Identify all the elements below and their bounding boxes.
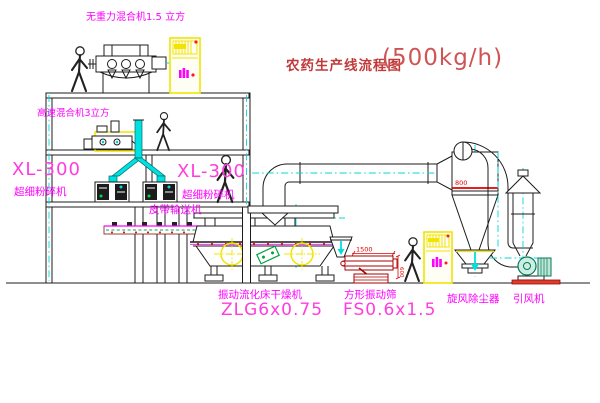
label-dryer-model: ZLG6x0.75: [221, 302, 323, 319]
pulverizer-left: [95, 176, 129, 202]
belt-conveyor: [104, 222, 202, 234]
label-mill-center-model: XL-300: [177, 163, 246, 181]
indicator-dot: [194, 40, 197, 43]
gravity-mixer: [88, 45, 174, 93]
control-cabinet-lower: [424, 232, 452, 283]
exhaust-hood-duct: [248, 156, 452, 225]
label-high-speed-mixer: 高速混合机3立方: [37, 109, 110, 119]
label-sieve-model: FS0.6x1.5: [343, 302, 436, 319]
person-icon: [72, 47, 87, 91]
drawing-title-capacity: (500kg/h): [382, 45, 503, 71]
label-sieve-name: 方形振动筛: [344, 290, 397, 301]
label-dryer-name: 振动流化床干燥机: [218, 290, 302, 301]
induced-draft-fan: [512, 257, 560, 284]
floor-slab-1: [46, 93, 249, 98]
label-fan: 引风机: [513, 294, 545, 305]
floor-slab-2: [46, 150, 249, 155]
fan-base: [512, 280, 560, 284]
label-mill-left-name: 超细粉碎机: [14, 187, 67, 198]
dim-sieve-height: 600: [398, 267, 404, 278]
cyclone-discharge-hopper: [455, 250, 495, 273]
person-icon: [405, 238, 420, 281]
square-vibrating-sieve: 1500 600: [341, 246, 404, 284]
label-dust-collector: 旋风除尘器: [447, 294, 500, 305]
label-belt-conveyor: 皮带输送机: [149, 205, 202, 216]
label-mill-center-name: 超细粉碎机: [182, 190, 235, 201]
discharge-cone: [330, 237, 352, 257]
dryer-feet: [205, 266, 334, 281]
floor-slab-3: [46, 202, 249, 207]
label-mill-left-model: XL-300: [12, 161, 81, 179]
dim-sieve-length: 1500: [356, 246, 373, 254]
column-overlay: [243, 207, 251, 283]
person-icon: [157, 113, 170, 151]
cad-process-flow-drawing: 800: [0, 0, 600, 403]
dim-cyclone: 800: [455, 179, 467, 187]
high-speed-mixer: [84, 121, 138, 151]
control-cabinet-upper: [170, 38, 200, 93]
label-gravity-mixer: 无重力混合机1.5 立方: [86, 13, 185, 23]
